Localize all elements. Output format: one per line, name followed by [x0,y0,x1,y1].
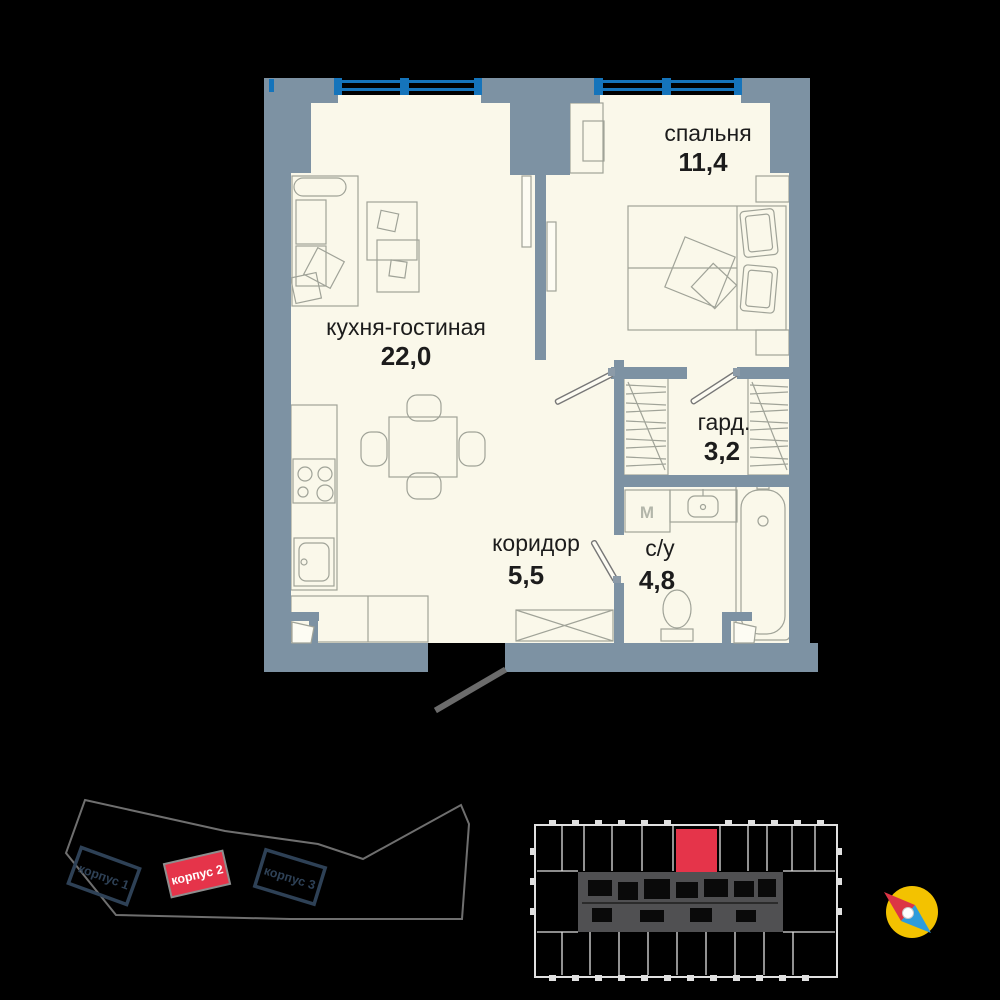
wall-bath-left-upper [614,487,624,535]
window-mullion [474,78,482,95]
wall-pier [510,98,570,175]
wall-left [264,95,291,648]
building-korpus-3[interactable]: корпус 3 [255,850,325,904]
wall-bottom-right [505,643,818,672]
shaft-right [722,612,731,643]
entrance-door-leaf [438,671,503,709]
window-mullion [662,78,671,95]
door-hinge [733,368,740,376]
wall-wardrobe-bath [614,475,790,487]
room-area-bedroom: 11,4 [678,147,728,177]
wall-living-bedroom [535,175,546,360]
window-mullion [594,78,603,95]
key-plan-selected-unit [676,829,717,872]
building-korpus-3-label: корпус 3 [262,864,317,893]
washing-machine-label: М [640,503,654,522]
key-plan [530,820,842,981]
room-label-kitchen: кухня-гостиная [326,314,486,340]
compass-pivot [903,908,914,919]
building-korpus-1[interactable]: корпус 1 [68,848,139,905]
site-plan: корпус 1 корпус 2 корпус 3 [66,800,469,919]
flat-plan-page: М [0,0,1000,1000]
window-glass-line [338,88,481,91]
plan-canvas: М [0,0,1000,1000]
room-area-bathroom: 4,8 [639,565,675,595]
door-hinge [608,368,615,376]
room-area-kitchen: 22,0 [381,341,432,371]
sliding-panel [522,176,531,247]
wall-bottom-left [264,643,428,672]
wall-corridor-wardrobe [614,360,624,487]
wall-bath-left-stub [614,583,624,643]
room-label-bathroom: с/у [645,535,675,561]
wall-bedroom-bottom-right [737,367,790,379]
room-area-corridor: 5,5 [508,560,544,590]
window-mullion [334,78,342,95]
window-tick [269,79,274,92]
key-plan-core [578,872,783,932]
window-glass-line [338,80,481,83]
window-mullion [734,78,742,95]
door-hinge [613,576,621,583]
sliding-panel [547,222,556,291]
wall-right [789,103,810,648]
window-mullion [400,78,409,95]
apartment-plan: М [264,78,818,709]
building-korpus-2-selected[interactable]: корпус 2 [164,851,230,898]
room-label-corridor: коридор [492,530,580,556]
room-label-wardrobe: гард. [698,409,751,435]
room-label-bedroom: спальня [664,120,751,146]
compass [884,886,938,938]
room-area-wardrobe: 3,2 [704,436,740,466]
